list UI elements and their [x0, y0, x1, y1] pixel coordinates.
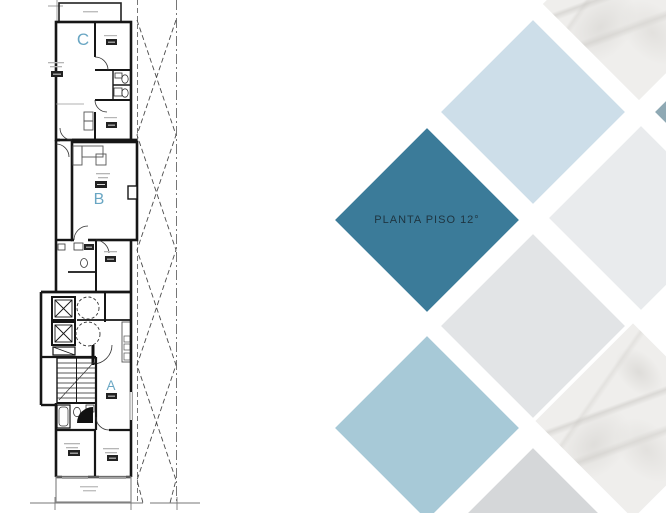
unit-b-label: B: [94, 191, 105, 208]
stairs: [57, 358, 96, 403]
unit-a-kitchen: [122, 322, 131, 362]
unit-c-walls: [56, 22, 137, 140]
unit-a-bath: [57, 405, 109, 430]
bottom-balcony: [56, 477, 131, 502]
floor-plan-svg: C B A: [0, 0, 210, 513]
door-gap: [74, 237, 88, 242]
unit-a-label: A: [106, 378, 115, 393]
balcony-text-hint-bottom: [80, 486, 98, 491]
unit-letters: C B A: [77, 30, 116, 393]
setback-x-lines: [137, 20, 176, 503]
mid-bath-fixtures: [58, 240, 109, 268]
core-door: [92, 345, 113, 365]
floor-plan: C B A: [0, 0, 210, 513]
room-tags: [48, 35, 119, 461]
top-balcony: [59, 3, 121, 22]
vent-shaft-circles: [76, 297, 100, 346]
page-canvas: PLANTA PISO 12°: [0, 0, 666, 513]
unit-b-kitchen: [73, 146, 106, 165]
unit-c-kitchen: [56, 104, 93, 130]
windows: [62, 392, 133, 479]
plan-title: PLANTA PISO 12°: [317, 214, 537, 226]
balcony-text-hint: [83, 11, 98, 12]
unit-c-label: C: [77, 30, 89, 49]
elevator-shafts: [52, 297, 75, 355]
